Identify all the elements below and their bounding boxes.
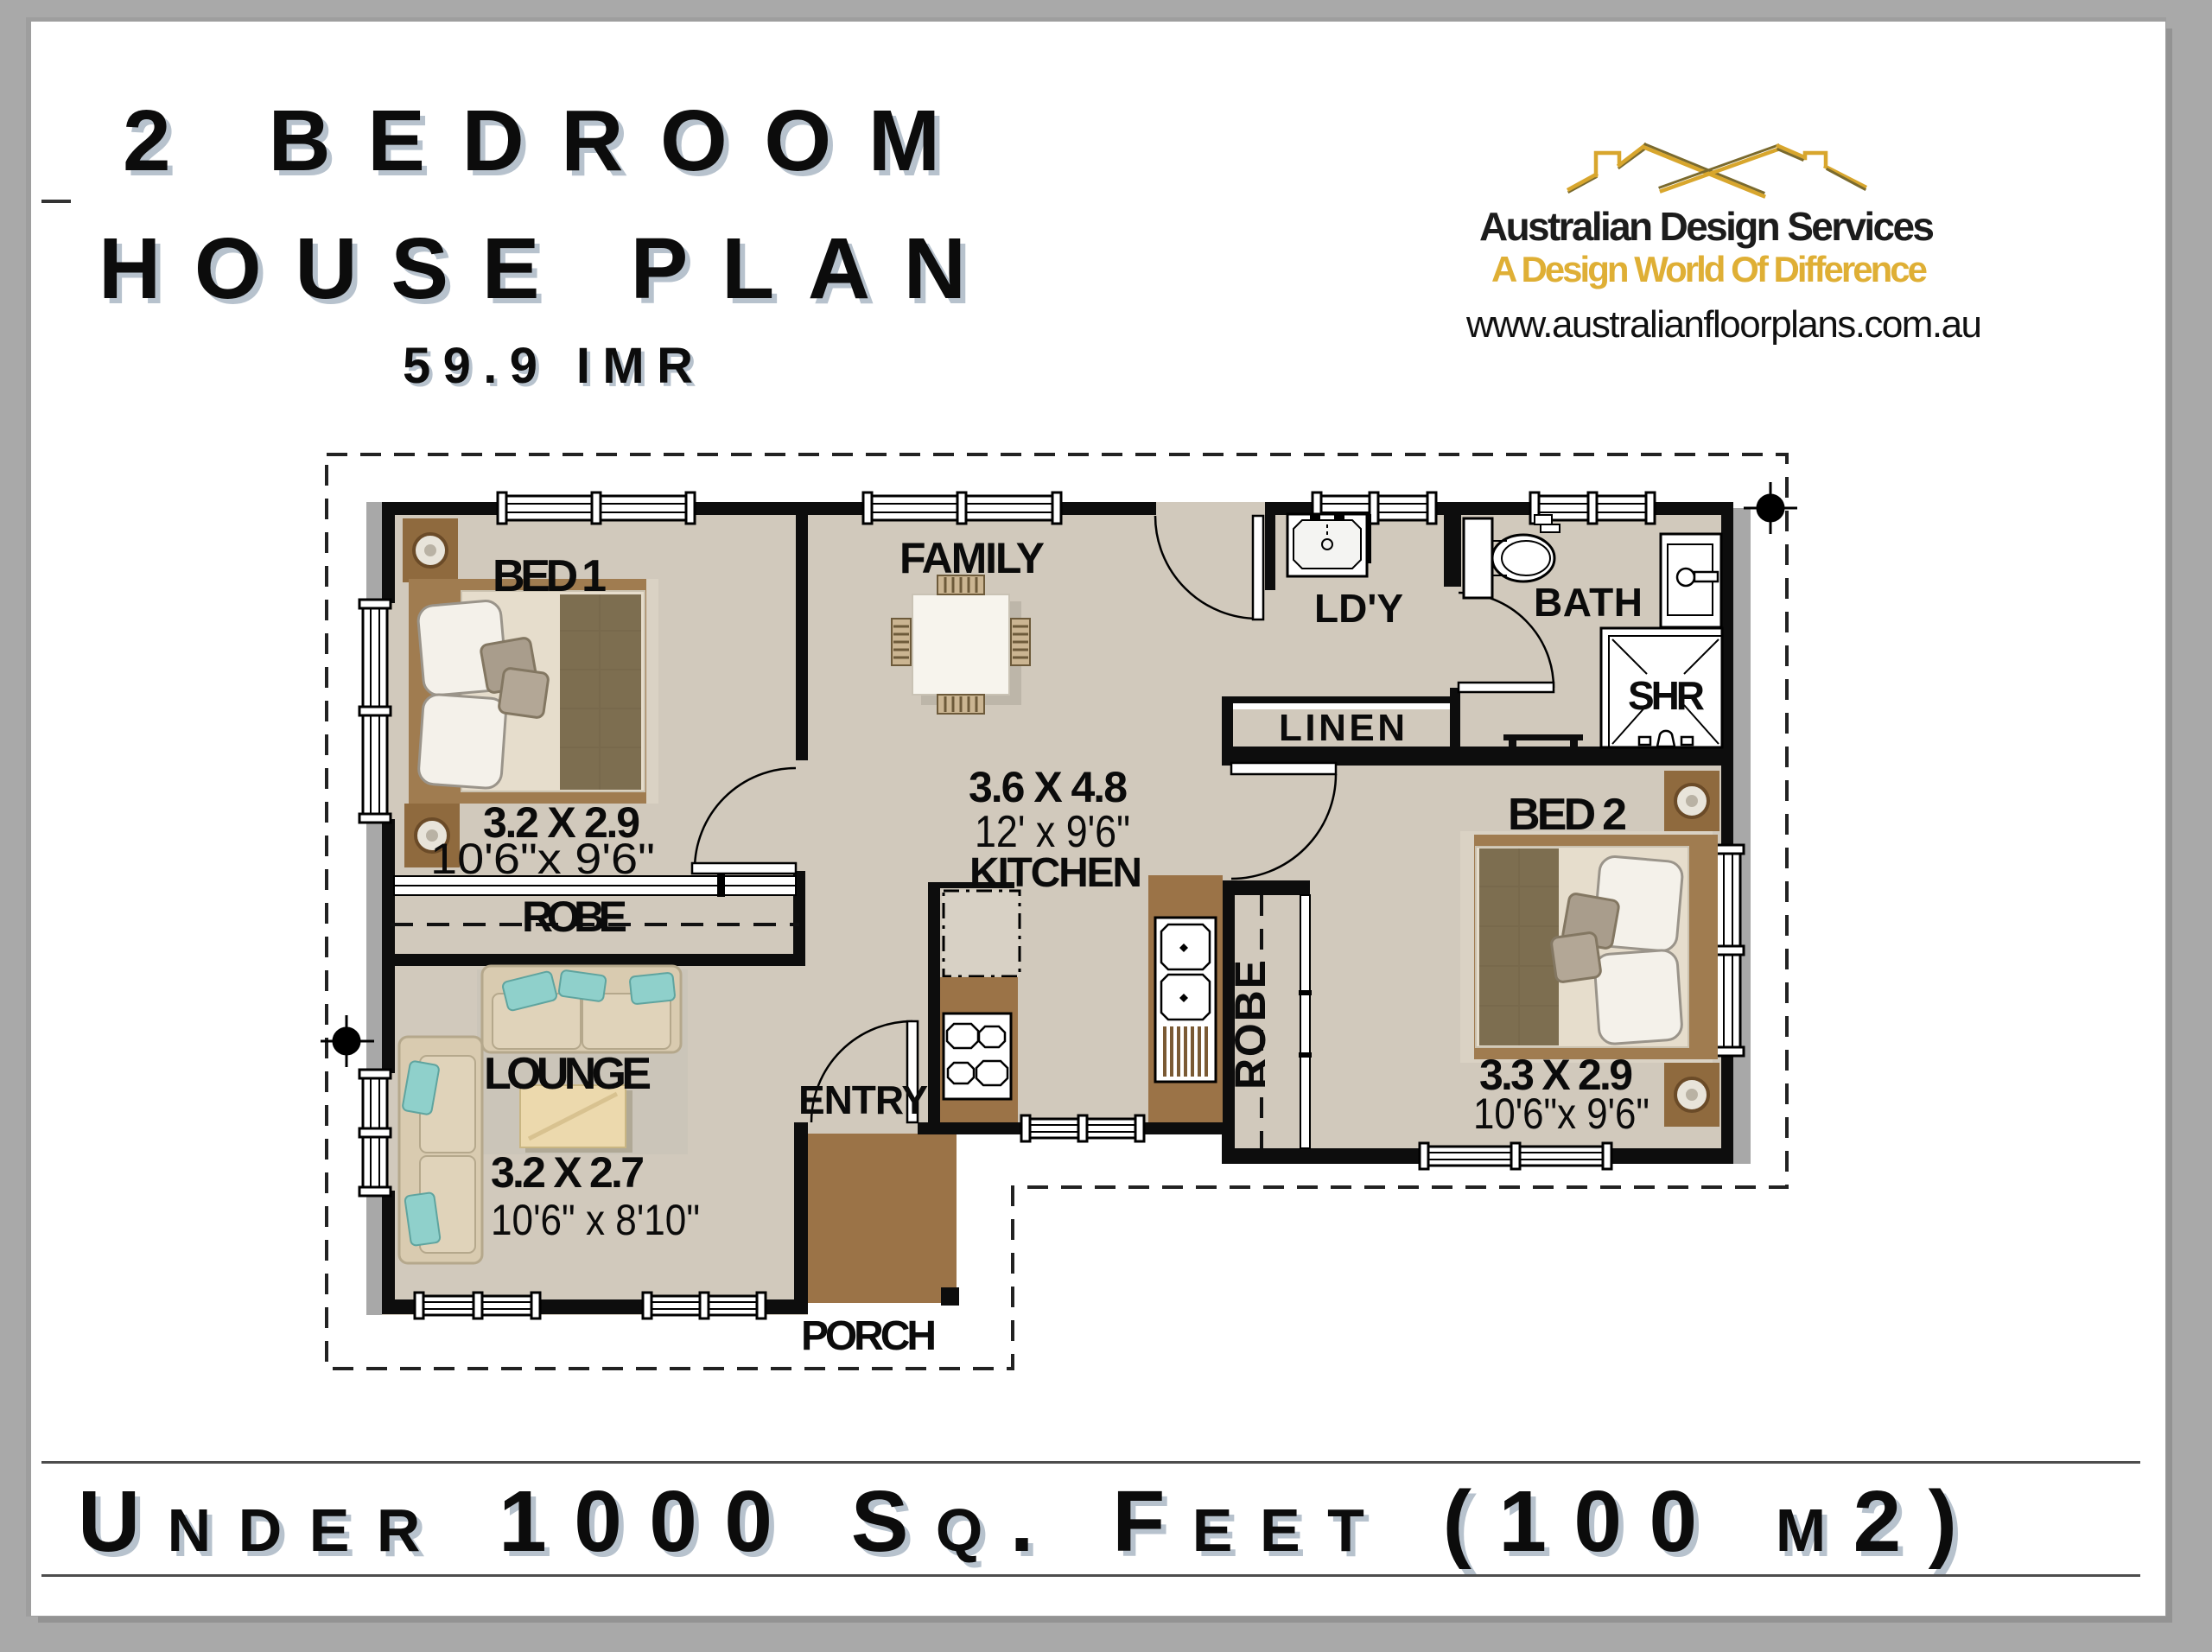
svg-text:KITCHEN: KITCHEN [969, 850, 1142, 896]
svg-text:3.2 X 2.7: 3.2 X 2.7 [491, 1148, 645, 1197]
svg-text:PORCH: PORCH [801, 1313, 937, 1359]
svg-text:Australian Design Services: Australian Design Services [1479, 204, 1935, 249]
svg-text:SHR: SHR [1628, 673, 1705, 718]
svg-text:BATH: BATH [1534, 580, 1643, 625]
svg-text:LOUNGE: LOUNGE [484, 1049, 652, 1099]
svg-text:LINEN: LINEN [1279, 707, 1405, 749]
svg-text:www.australianfloorplans.com.a: www.australianfloorplans.com.au [1465, 303, 1982, 346]
svg-text:HOUSE PLAN: HOUSE PLAN [99, 220, 966, 317]
svg-text:ROBE: ROBE [522, 893, 627, 941]
svg-text:10'6"x 9'6": 10'6"x 9'6" [430, 835, 655, 883]
svg-text:ROBE: ROBE [1226, 960, 1274, 1090]
svg-text:BED 1: BED 1 [493, 551, 607, 601]
svg-text:LD'Y: LD'Y [1314, 586, 1403, 631]
svg-text:ENTRY: ENTRY [798, 1077, 928, 1122]
svg-text:10'6" x 8'10": 10'6" x 8'10" [491, 1196, 700, 1244]
svg-text:3.6 X 4.8: 3.6 X 4.8 [969, 763, 1128, 811]
svg-text:FAMILY: FAMILY [899, 534, 1045, 582]
svg-text:A Design World Of Difference: A Design World Of Difference [1491, 249, 1928, 289]
svg-text:10'6"x 9'6": 10'6"x 9'6" [1473, 1090, 1649, 1138]
svg-text:BED 2: BED 2 [1508, 790, 1627, 840]
